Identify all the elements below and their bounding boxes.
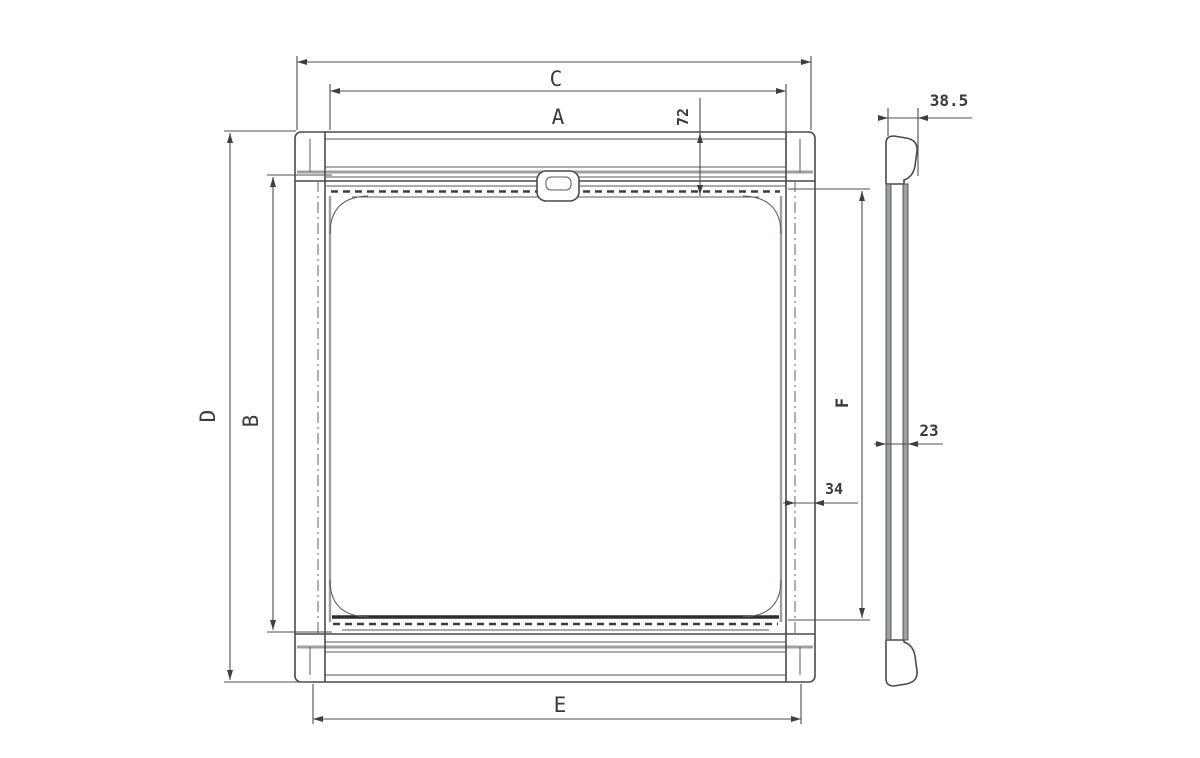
dimension-f: F <box>788 189 870 620</box>
dimension-23: 23 <box>874 421 943 447</box>
dim-label-c: C <box>550 67 563 91</box>
dim-label-e: E <box>554 693 567 717</box>
side-profile-view <box>886 136 917 686</box>
front-view <box>295 132 815 682</box>
profile-bottom-foot <box>886 640 917 686</box>
right-side-rail <box>786 181 795 634</box>
dimension-d: D <box>196 131 314 682</box>
fabric-bottom-rail <box>332 617 779 630</box>
dim-label-d: D <box>196 410 220 423</box>
profile-top-hook <box>886 136 917 184</box>
fabric-corner-arcs <box>330 196 781 617</box>
dimension-e: E <box>313 684 801 724</box>
left-side-rail <box>318 181 325 634</box>
dim-label-34: 34 <box>825 480 843 498</box>
dim-label-23: 23 <box>919 421 938 440</box>
frame-outer-rect <box>295 132 815 682</box>
pull-handle <box>537 171 579 201</box>
handle-grip <box>546 177 571 190</box>
profile-rear-wall <box>903 184 908 640</box>
dim-label-f: F <box>833 398 853 408</box>
dim-label-a: A <box>552 105 565 129</box>
blind-drawing-svg: C A 72 D <box>0 0 1200 758</box>
dimension-34: 34 <box>783 480 858 506</box>
dim-label-b: B <box>239 415 263 428</box>
technical-drawing-page: C A 72 D <box>0 0 1200 758</box>
profile-front-wall <box>886 184 891 640</box>
dim-label-38-5: 38.5 <box>930 91 969 110</box>
dim-label-72: 72 <box>674 108 692 126</box>
bottom-cassette-bar <box>295 634 815 682</box>
